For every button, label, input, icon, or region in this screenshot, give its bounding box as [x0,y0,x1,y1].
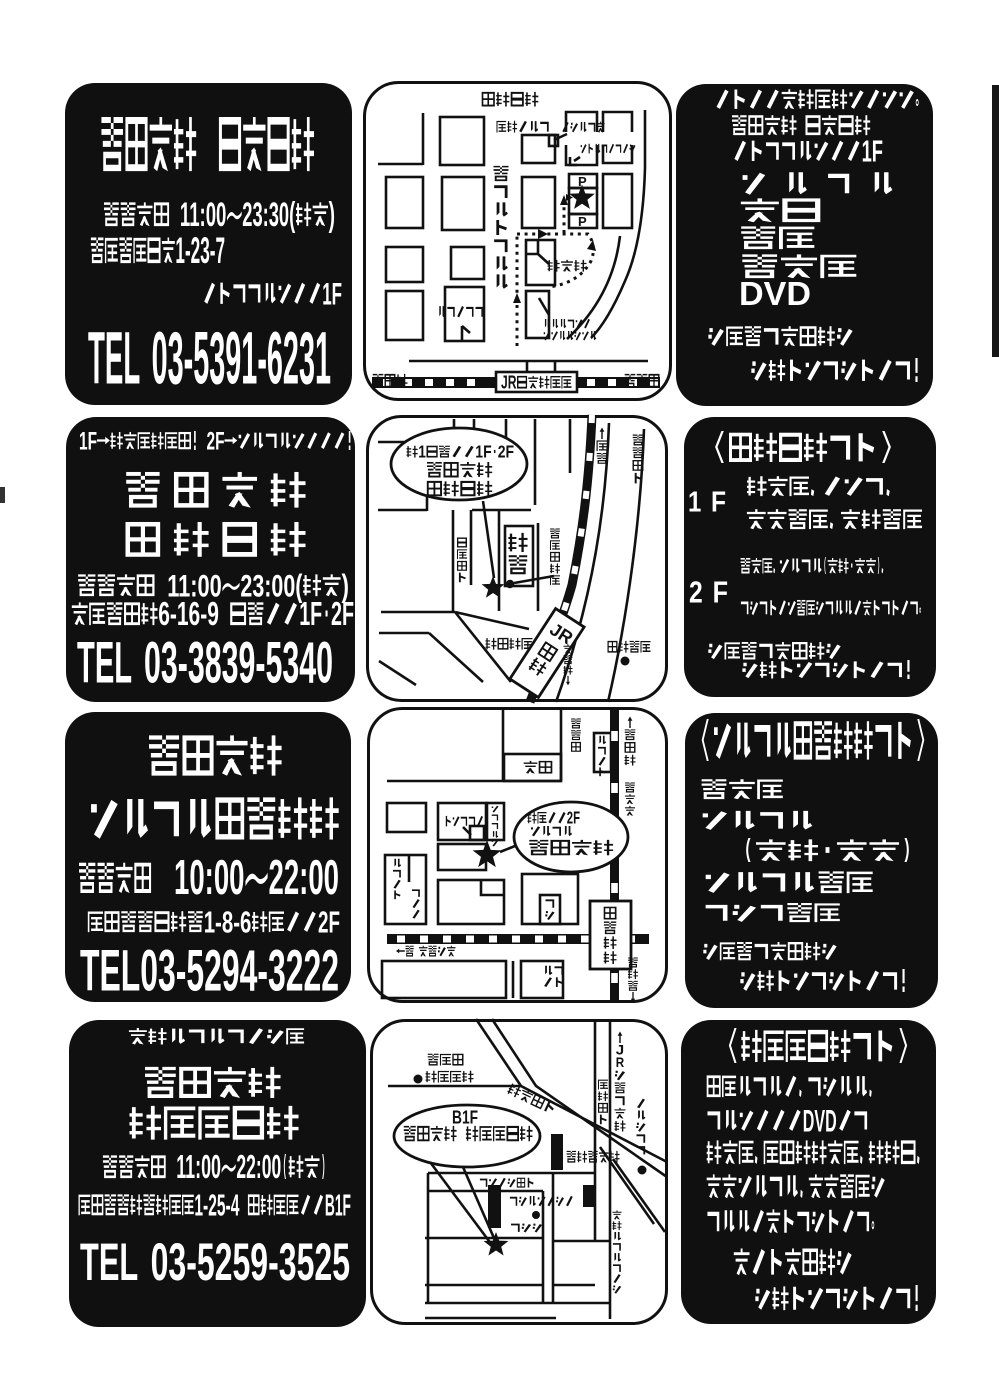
svg-text:2F: 2F [498,442,514,462]
svg-text:F: F [711,486,726,518]
svg-text:1-8-6: 1-8-6 [204,905,252,939]
svg-text:1F: 1F [299,595,322,632]
svg-text:03-5391-6231: 03-5391-6231 [152,316,331,399]
svg-text:TEL: TEL [77,631,132,696]
svg-text:1-23-7: 1-23-7 [175,230,225,271]
svg-text:6-16-9: 6-16-9 [158,595,219,632]
svg-text:2F: 2F [567,808,580,828]
svg-text:1F: 1F [862,134,883,168]
svg-text:2F: 2F [207,427,225,455]
svg-text:10:00: 10:00 [174,851,245,905]
svg-text:JR: JR [501,372,517,393]
svg-text:1: 1 [688,486,701,518]
svg-text:11:00: 11:00 [176,1148,221,1185]
svg-text:23:30(: 23:30( [242,196,295,234]
svg-text:F: F [713,575,728,609]
svg-text:1F: 1F [322,275,342,311]
svg-text:1: 1 [418,442,426,462]
svg-text:03-3839-5340: 03-3839-5340 [144,631,333,696]
svg-text:2: 2 [689,575,703,609]
svg-text:B1F: B1F [325,1188,351,1222]
svg-text:1-25-4: 1-25-4 [194,1188,239,1222]
svg-text:2F: 2F [331,595,354,632]
svg-text:23:00(: 23:00( [240,567,302,603]
svg-text:R: R [616,1055,624,1070]
svg-text:11:00: 11:00 [180,196,227,234]
svg-text:): ) [329,196,335,234]
svg-text:P: P [578,214,587,229]
svg-text:TEL: TEL [88,316,140,399]
svg-text:1F: 1F [475,442,491,462]
svg-text:2F: 2F [318,905,340,939]
svg-text:DVD: DVD [803,1102,837,1138]
svg-text:TEL: TEL [80,1233,138,1292]
svg-text:B1F: B1F [452,1107,478,1128]
svg-text:TEL03-5294-3222: TEL03-5294-3222 [80,939,339,1004]
svg-text:22:00: 22:00 [236,1148,281,1185]
svg-text:22:00: 22:00 [269,851,340,905]
svg-text:DVD: DVD [739,275,811,312]
svg-text:03-5259-3525: 03-5259-3525 [151,1233,350,1292]
svg-text:1F: 1F [79,427,97,455]
